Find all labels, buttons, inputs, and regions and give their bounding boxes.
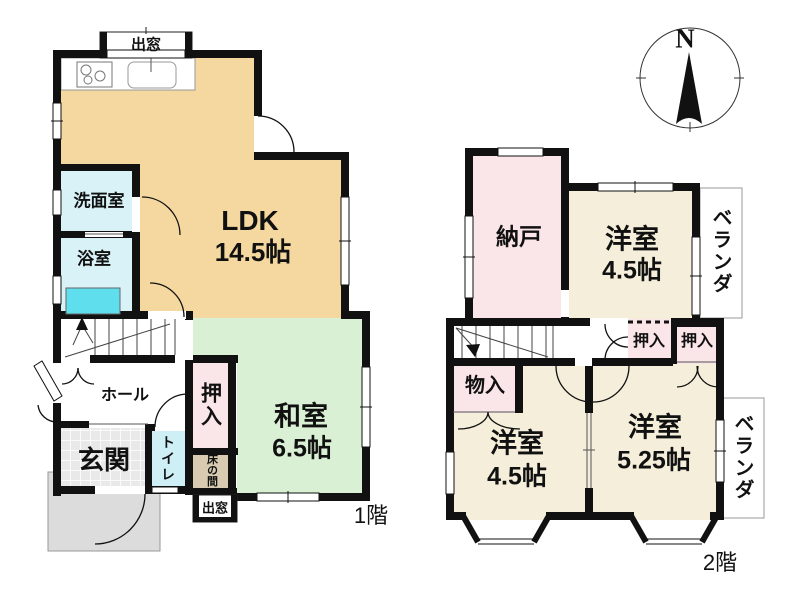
stairs-2f [456, 326, 553, 358]
label-bay-window-top: 出窓 [131, 38, 161, 53]
label-veranda-bottom: ベランダ [732, 413, 752, 501]
label-bathroom: 浴室 [77, 251, 111, 268]
label-ldk: LDK [221, 207, 279, 235]
label-monoire: 物入 [465, 376, 505, 396]
label-oshiire-1f: 押入 [200, 382, 221, 428]
stairs-down-arrow [466, 344, 480, 357]
bathtub-icon [66, 288, 120, 314]
floor-plan-canvas: 出窓 LDK 14.5帖 洗面室 浴室 ホール 玄関 トイレ 押入 床の間 出窓… [0, 0, 800, 598]
label-floor2: 2階 [703, 552, 737, 574]
label-tokonoma: 床の間 [206, 454, 217, 487]
stairs-1f [65, 317, 175, 357]
stove-icon [77, 62, 112, 87]
label-western-sw: 洋室 [490, 431, 544, 458]
floor-plan-drawing [0, 0, 800, 598]
label-entrance: 玄関 [78, 447, 130, 473]
label-veranda-top: ベランダ [710, 207, 730, 295]
label-western-sw-size: 4.5帖 [487, 465, 547, 490]
label-oshiire-right: 押入 [681, 334, 713, 350]
label-ldk-size: 14.5帖 [215, 239, 292, 265]
label-bay-window-bottom: 出窓 [202, 502, 228, 515]
sink-icon [128, 62, 176, 88]
label-floor1: 1階 [354, 505, 388, 527]
label-western-se: 洋室 [628, 415, 682, 442]
label-western-se-size: 5.25帖 [617, 449, 691, 474]
label-washitsu-size: 6.5帖 [272, 437, 332, 462]
compass-north-label: N [675, 26, 695, 53]
label-western-ne-size: 4.5帖 [602, 259, 662, 284]
label-washitsu: 和室 [274, 404, 328, 431]
label-toilet: トイレ [161, 435, 175, 483]
label-nando: 納戸 [496, 226, 542, 249]
label-oshiire-left: 押入 [633, 334, 665, 350]
label-washroom: 洗面室 [74, 193, 125, 210]
compass-north-arrow [676, 52, 702, 124]
label-western-ne: 洋室 [605, 227, 659, 254]
label-hall: ホール [101, 388, 149, 404]
kitchen-counter [61, 58, 195, 90]
